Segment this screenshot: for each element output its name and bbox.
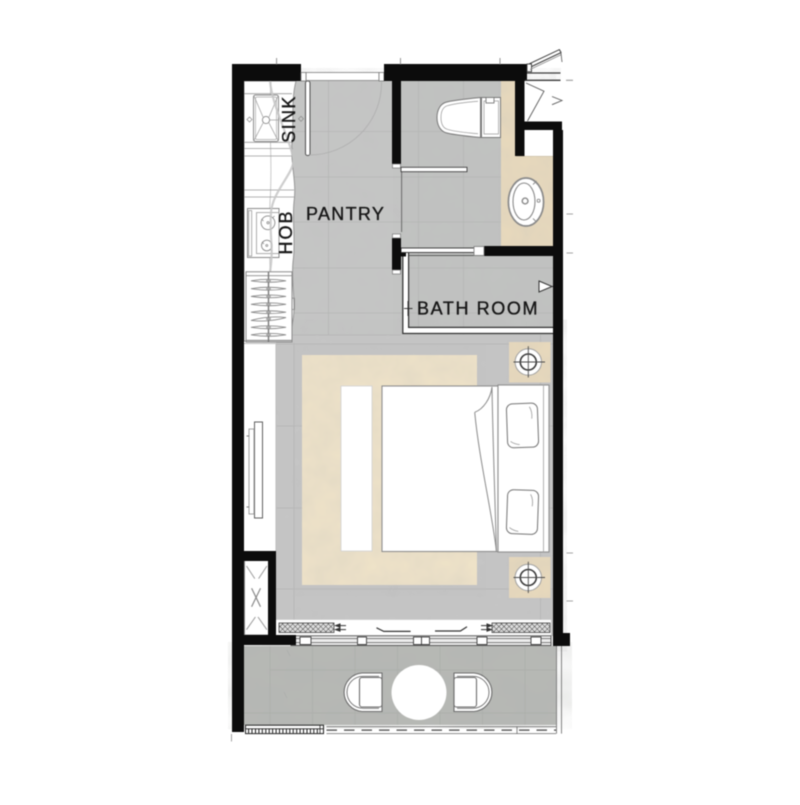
svg-text:SINK: SINK <box>279 95 299 143</box>
svg-text:BATH ROOM: BATH ROOM <box>417 299 539 319</box>
svg-text:HOB: HOB <box>276 209 296 254</box>
svg-text:PANTRY: PANTRY <box>306 204 385 224</box>
